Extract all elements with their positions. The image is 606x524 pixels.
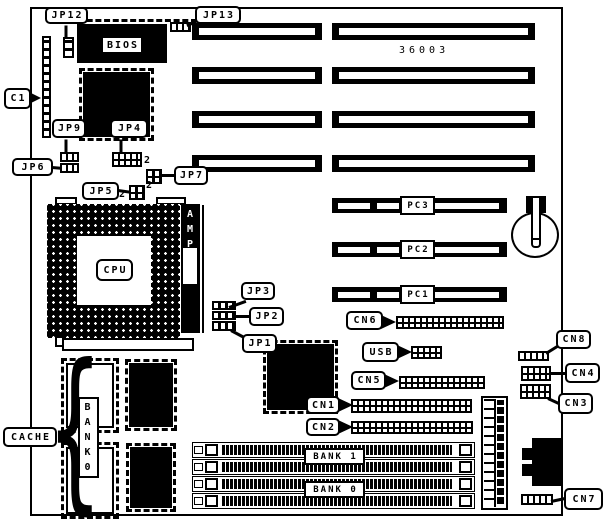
label-cn5: CN5 (351, 371, 386, 390)
jp7-pin2-mark: 2 (146, 180, 152, 191)
label-cn1: CN1 (306, 396, 340, 414)
jp6-jumper (60, 163, 79, 173)
isa-slot-1-right (332, 23, 535, 40)
pci-slot-pc3: PC3 (332, 198, 507, 213)
label-jp13: JP13 (195, 6, 241, 24)
label-cn2: CN2 (306, 418, 340, 436)
cache-bank0-label: BANK0 (78, 397, 99, 478)
pointer-jp7 (160, 174, 174, 177)
jp5-jumper (129, 185, 145, 200)
pointer-jp12 (65, 26, 68, 39)
pointer-cn4 (549, 372, 566, 375)
isa-slot-3-left (192, 111, 322, 128)
cn7-header (521, 494, 553, 505)
logic-chip-lower (130, 447, 172, 508)
cn8-header (518, 351, 549, 361)
pointer-jp4 (120, 140, 123, 153)
cn1-header (351, 399, 472, 413)
label-jp6: JP6 (12, 158, 53, 176)
cn5-header (399, 376, 485, 389)
jp12-jumper (63, 37, 74, 58)
pointer-usb (397, 345, 412, 359)
pci-slot-pc2: PC2 (332, 242, 507, 257)
isa-slot-4-right (332, 155, 535, 172)
label-cn3: CN3 (558, 393, 593, 414)
isa-slot-2-right (332, 67, 535, 84)
jp9-jumper (60, 152, 79, 162)
pointer-cn6 (381, 315, 396, 329)
power-connector (481, 396, 508, 510)
pointer-cn1 (338, 398, 353, 412)
label-c1: C1 (4, 88, 31, 109)
pointer-cn2 (338, 420, 353, 434)
label-jp1: JP1 (242, 334, 277, 353)
label-jp12: JP12 (45, 7, 88, 24)
isa-slot-3-right (332, 111, 535, 128)
pointer-jp2 (236, 315, 250, 318)
cn2-header (351, 421, 473, 434)
label-usb: USB (362, 342, 399, 362)
bank0-label: BANK 0 (304, 481, 365, 498)
motherboard-diagram: BIOS 36003 2 2 2 CPU AMP PC3 (0, 0, 606, 524)
battery-clip (531, 196, 541, 248)
pointer-cn5 (384, 374, 399, 388)
jp2-jumper (212, 311, 236, 320)
pci-slot-pc1: PC1 (332, 287, 507, 302)
keyboard-connector-pin-lower (522, 464, 533, 476)
isa-slot-1-left (192, 23, 322, 40)
bank1-label: BANK 1 (304, 448, 365, 465)
keyboard-connector (532, 438, 563, 486)
label-cn6: CN6 (346, 311, 383, 330)
label-cache: CACHE (3, 427, 57, 447)
amp-module-edge-line (202, 205, 204, 333)
cpu-label: CPU (96, 259, 133, 281)
logic-chip-upper (129, 363, 173, 427)
pointer-jp9 (65, 140, 68, 153)
cn6-header (396, 316, 504, 329)
label-jp9: JP9 (52, 119, 86, 138)
label-jp7: JP7 (174, 166, 208, 185)
c1-connector (42, 36, 51, 138)
cn3-header (520, 384, 551, 399)
label-jp2: JP2 (249, 307, 284, 326)
usb-header (411, 346, 442, 359)
isa-slot-4-left (192, 155, 322, 172)
board-part-number: 36003 (399, 45, 449, 56)
label-jp4: JP4 (110, 119, 148, 138)
label-jp5: JP5 (82, 182, 119, 200)
pci-slot-label-pc3: PC3 (400, 196, 435, 215)
battery-clip-tick (533, 238, 539, 240)
cn4-header (521, 366, 551, 381)
pci-slot-label-pc1: PC1 (400, 285, 435, 304)
jp4-pin2-mark: 2 (144, 155, 150, 166)
bios-label: BIOS (101, 36, 143, 54)
pci-slot-label-pc2: PC2 (400, 240, 435, 259)
power-connector-key (497, 400, 504, 506)
label-jp3: JP3 (241, 282, 275, 300)
label-cn8: CN8 (556, 330, 591, 349)
isa-slot-2-left (192, 67, 322, 84)
label-cn4: CN4 (565, 363, 600, 383)
keyboard-connector-pin-upper (522, 448, 533, 460)
power-connector-pins (484, 399, 496, 507)
amp-module-window (183, 248, 197, 284)
jp4-header (112, 152, 142, 167)
label-cn7: CN7 (564, 488, 603, 510)
amp-label: AMP (181, 207, 200, 252)
